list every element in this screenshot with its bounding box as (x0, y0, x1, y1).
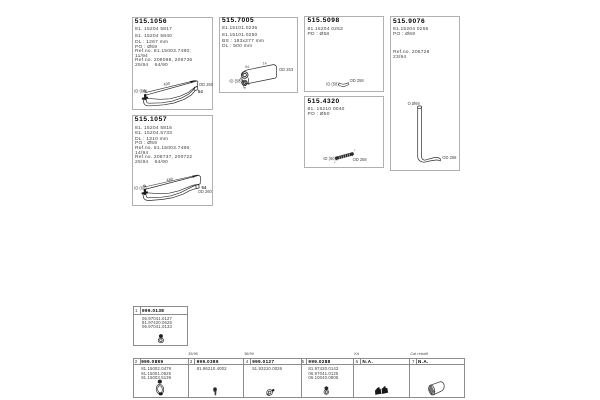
svg-text:54: 54 (198, 89, 203, 94)
svg-text:14: 14 (263, 61, 267, 65)
svg-text:OD 260: OD 260 (199, 82, 214, 87)
svg-text:ID (60): ID (60) (134, 88, 147, 93)
svg-text:ID (58): ID (58) (229, 78, 242, 83)
svg-text:490: 490 (163, 80, 171, 87)
svg-text:480: 480 (166, 176, 174, 183)
svg-text:OD 263: OD 263 (279, 67, 294, 72)
svg-text:OD 258: OD 258 (353, 157, 368, 162)
svg-text:ID (60): ID (60) (323, 156, 336, 161)
svg-text:O Ø69: O Ø69 (408, 101, 421, 106)
svg-text:54: 54 (202, 185, 207, 190)
svg-text:ID (58): ID (58) (326, 81, 339, 86)
svg-text:OD 268: OD 268 (442, 155, 457, 160)
svg-text:94: 94 (245, 65, 249, 69)
svg-text:OD 258: OD 258 (350, 78, 365, 83)
svg-text:ID (60): ID (60) (134, 185, 147, 190)
